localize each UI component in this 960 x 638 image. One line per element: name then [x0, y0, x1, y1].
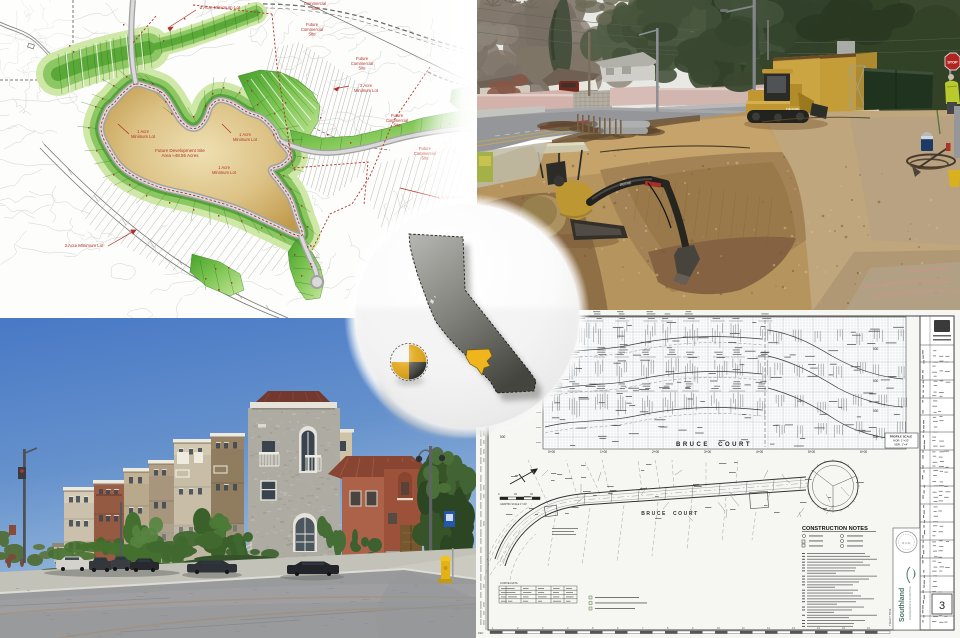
svg-text:BRUCE COURT: BRUCE COURT: [641, 511, 699, 517]
svg-text:STOP: STOP: [947, 61, 958, 65]
svg-text:6+00: 6+00: [860, 450, 867, 454]
svg-text:Minimum Lot: Minimum Lot: [131, 134, 156, 139]
svg-text:Area ≈48.55 Acres: Area ≈48.55 Acres: [162, 153, 200, 158]
svg-text:500: 500: [500, 435, 506, 439]
svg-text:Site: Site: [308, 32, 316, 37]
svg-text:Site: Site: [393, 123, 401, 128]
svg-text:ENGINEERING & SURVEYING: ENGINEERING & SURVEYING: [909, 586, 912, 620]
svg-text:TRACT 5544: TRACT 5544: [888, 608, 892, 626]
svg-text:500: 500: [873, 409, 879, 413]
svg-text:500: 500: [873, 435, 879, 439]
svg-text:Site: Site: [358, 66, 366, 71]
svg-text:Site: Site: [311, 6, 319, 11]
svg-text:5+00: 5+00: [808, 450, 815, 454]
svg-text:2 Acre Minimum Lot: 2 Acre Minimum Lot: [200, 5, 241, 10]
svg-text:Minimum Lot: Minimum Lot: [354, 88, 379, 93]
svg-text:3+00: 3+00: [704, 450, 711, 454]
svg-text:1+00: 1+00: [600, 450, 607, 454]
svg-text:2+00: 2+00: [652, 450, 659, 454]
svg-text:4+00: 4+00: [756, 450, 763, 454]
svg-text:Minimum Lot: Minimum Lot: [212, 170, 237, 175]
svg-text:Southland: Southland: [899, 588, 906, 622]
svg-text:500: 500: [873, 379, 879, 383]
svg-text:3: 3: [939, 600, 945, 612]
svg-text:GRAPHIC SCALE 1"=40': GRAPHIC SCALE 1"=40': [500, 503, 527, 506]
svg-text:2 Acre Minimum Lot: 2 Acre Minimum Lot: [65, 243, 105, 248]
svg-text:BRUCE COURT: BRUCE COURT: [676, 442, 752, 448]
svg-text:REF:: REF:: [478, 631, 484, 635]
svg-text:CURVE DATA: CURVE DATA: [500, 581, 518, 585]
svg-text:CONSTRUCTION NOTES: CONSTRUCTION NOTES: [802, 526, 868, 532]
svg-text:Minimum Lot: Minimum Lot: [233, 137, 258, 142]
svg-text:0+00: 0+00: [548, 450, 555, 454]
svg-text:VER: 1"=4': VER: 1"=4': [894, 443, 908, 447]
svg-text:R.C.E.: R.C.E.: [902, 541, 911, 545]
svg-text:500: 500: [873, 347, 879, 351]
